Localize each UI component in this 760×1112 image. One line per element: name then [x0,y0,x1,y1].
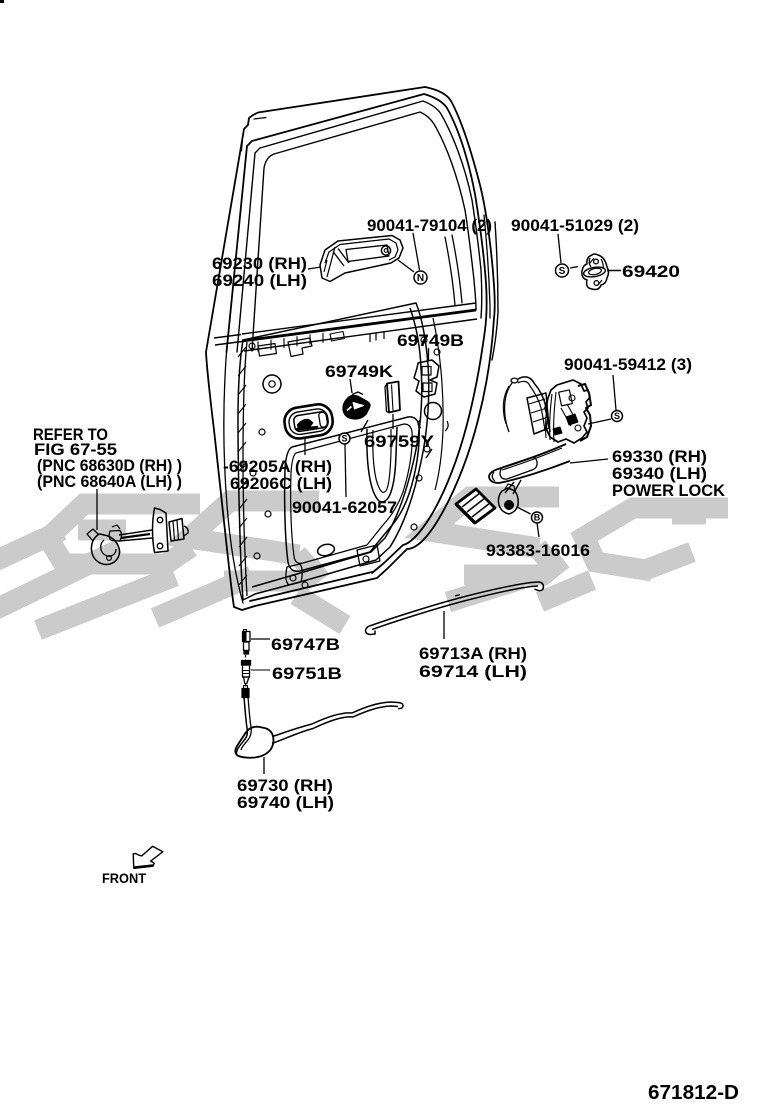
svg-text:671812-D: 671812-D [648,1081,739,1104]
svg-text:S: S [559,266,566,277]
svg-text:POWER LOCK: POWER LOCK [612,482,725,500]
svg-text:69420: 69420 [622,263,680,281]
svg-text:69747B: 69747B [271,636,340,654]
svg-text:N: N [417,273,424,284]
svg-text:69749K: 69749K [325,363,393,381]
svg-text:90041-59412 (3): 90041-59412 (3) [564,356,692,374]
svg-text:69740 (LH): 69740 (LH) [237,794,334,812]
svg-text:90041-51029 (2): 90041-51029 (2) [511,217,639,235]
svg-text:69713A (RH): 69713A (RH) [419,645,527,663]
svg-text:69714 (LH): 69714 (LH) [419,663,527,681]
svg-text:69749B: 69749B [397,332,464,350]
svg-text:69330 (RH): 69330 (RH) [612,448,707,466]
svg-text:69240 (LH): 69240 (LH) [212,272,307,290]
svg-text:90041-79104 (2): 90041-79104 (2) [367,217,492,235]
svg-text:FRONT: FRONT [102,870,146,886]
svg-text:69340 (LH): 69340 (LH) [612,465,707,483]
svg-text:69751B: 69751B [272,665,342,683]
svg-text:69759Y: 69759Y [364,433,434,451]
svg-text:69730 (RH): 69730 (RH) [237,777,333,795]
svg-text:(PNC 68640A (LH) ): (PNC 68640A (LH) ) [37,473,182,491]
svg-text:B: B [534,513,541,523]
svg-text:S: S [341,434,347,444]
svg-text:69206C (LH): 69206C (LH) [230,475,332,493]
svg-text:69230 (RH): 69230 (RH) [212,255,307,273]
svg-text:-69205A (RH): -69205A (RH) [223,458,332,476]
svg-text:90041-62057: 90041-62057 [292,499,397,517]
svg-text:93383-16016: 93383-16016 [486,542,590,560]
svg-text:S: S [614,411,620,421]
